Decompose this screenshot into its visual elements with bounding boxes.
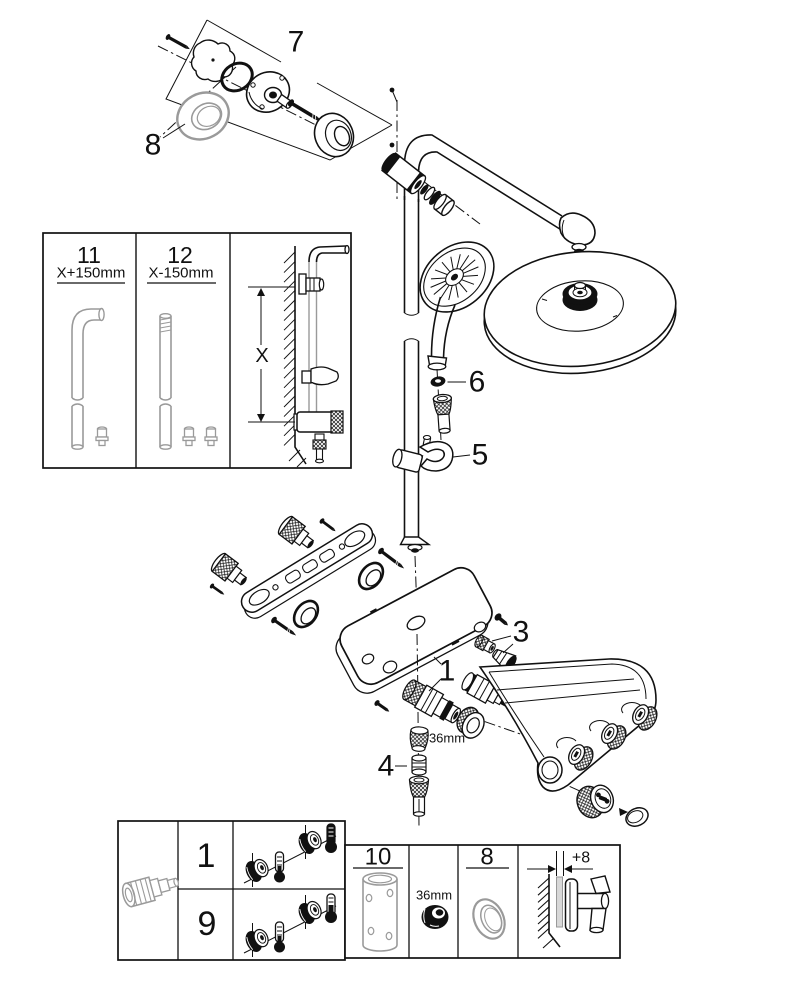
option-12-length: X-150mm — [148, 265, 213, 282]
legend-row-9-label: 9 — [198, 905, 217, 943]
ring-nut-icon — [289, 596, 323, 631]
screw-icon — [209, 583, 226, 597]
legend-8-label: 8 — [480, 844, 493, 871]
offset-dim-label: +8 — [572, 850, 590, 867]
legend-left-box: 1 9 — [118, 821, 345, 960]
screw-icon — [319, 517, 338, 533]
check-valve-stack-icon — [409, 726, 428, 816]
callout-5-label: 5 — [472, 439, 489, 472]
parts-diagram-page: 7 8 — [0, 0, 794, 1000]
callout-3-label: 3 — [513, 616, 530, 649]
ring-nut-photo-icon — [422, 905, 449, 929]
legend-right-box: 10 36mm 8 +8 — [345, 844, 620, 959]
callout-8-label: 8 — [145, 129, 162, 162]
shower-column-group — [379, 135, 681, 613]
rain-shower-head-icon — [479, 244, 680, 381]
callout-7-label: 7 — [288, 26, 305, 59]
union-fitting-icon — [276, 514, 319, 554]
height-dim-label: X — [255, 345, 268, 367]
housing-cover-icon — [480, 659, 661, 791]
thermometer-icon — [274, 852, 285, 883]
thermometer-icon — [325, 824, 337, 853]
rosette-icon — [169, 84, 237, 149]
nut-size-label: 36mm — [429, 731, 465, 746]
control-knob-icon — [573, 779, 618, 821]
callout-6-label: 6 — [469, 366, 486, 399]
thermometer-icon — [325, 894, 337, 923]
screw-icon — [493, 612, 510, 628]
legend-36mm-label: 36mm — [416, 888, 452, 903]
wall-union-icon — [379, 151, 480, 224]
screw-icon — [373, 699, 391, 714]
exploded-diagram-svg: 7 8 — [0, 0, 794, 1000]
callout-1-label: 1 — [439, 655, 456, 688]
union-fitting-icon — [209, 551, 252, 591]
hose-fitting-icon — [433, 394, 454, 434]
hand-shower-holder-icon — [391, 436, 453, 473]
legend-10-label: 10 — [365, 844, 392, 871]
hand-shower-group: 6 5 — [391, 228, 508, 473]
knob-cap-icon — [623, 804, 651, 829]
length-options-inset: 11 X+150mm 12 X-150mm — [43, 233, 351, 468]
wall-union-detail-group: 7 8 — [145, 20, 397, 200]
pin-icon — [165, 33, 192, 52]
arm-end-icon — [560, 213, 596, 245]
option-11-length: X+150mm — [57, 265, 126, 282]
thermometer-icon — [274, 922, 285, 953]
legend-row-1-label: 1 — [197, 837, 216, 875]
ring-nut-icon — [354, 558, 388, 593]
callout-4-label: 4 — [378, 750, 395, 783]
